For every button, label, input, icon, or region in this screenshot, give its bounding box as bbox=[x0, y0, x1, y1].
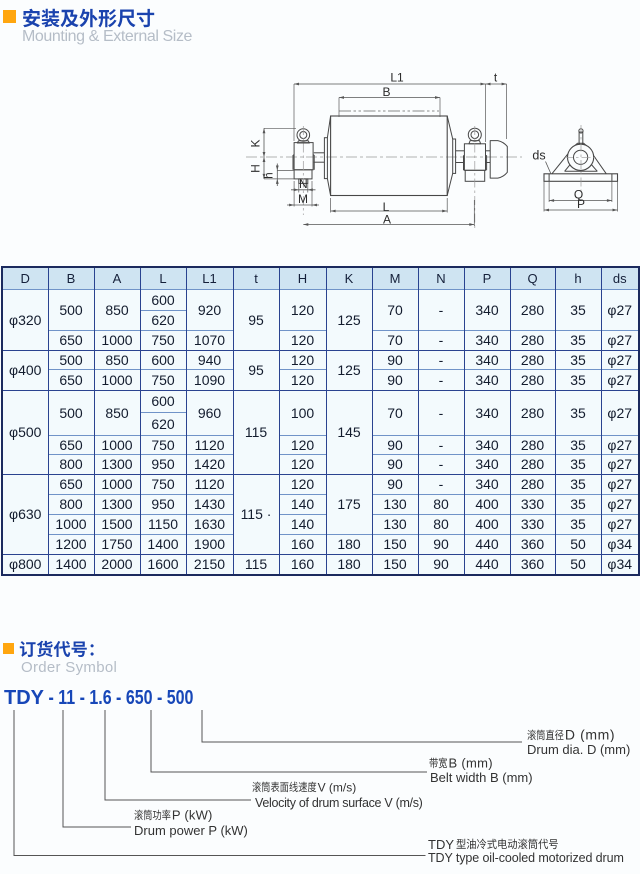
svg-text:H: H bbox=[249, 164, 263, 173]
svg-text:N: N bbox=[299, 177, 308, 191]
svg-text:P: P bbox=[577, 197, 585, 211]
svg-text:L1: L1 bbox=[390, 71, 404, 85]
svg-text:V (m/s): V (m/s) bbox=[318, 781, 357, 794]
svg-text:A: A bbox=[383, 213, 391, 227]
svg-text:M: M bbox=[298, 192, 308, 206]
svg-text:h: h bbox=[264, 172, 276, 178]
svg-text:B (mm): B (mm) bbox=[449, 757, 493, 770]
svg-text:t: t bbox=[494, 71, 498, 85]
svg-text:ds: ds bbox=[532, 149, 545, 163]
svg-text:P (kW): P (kW) bbox=[172, 809, 213, 822]
svg-text:B: B bbox=[382, 85, 390, 99]
svg-text:K: K bbox=[249, 139, 263, 147]
svg-text:D (mm): D (mm) bbox=[565, 729, 615, 742]
